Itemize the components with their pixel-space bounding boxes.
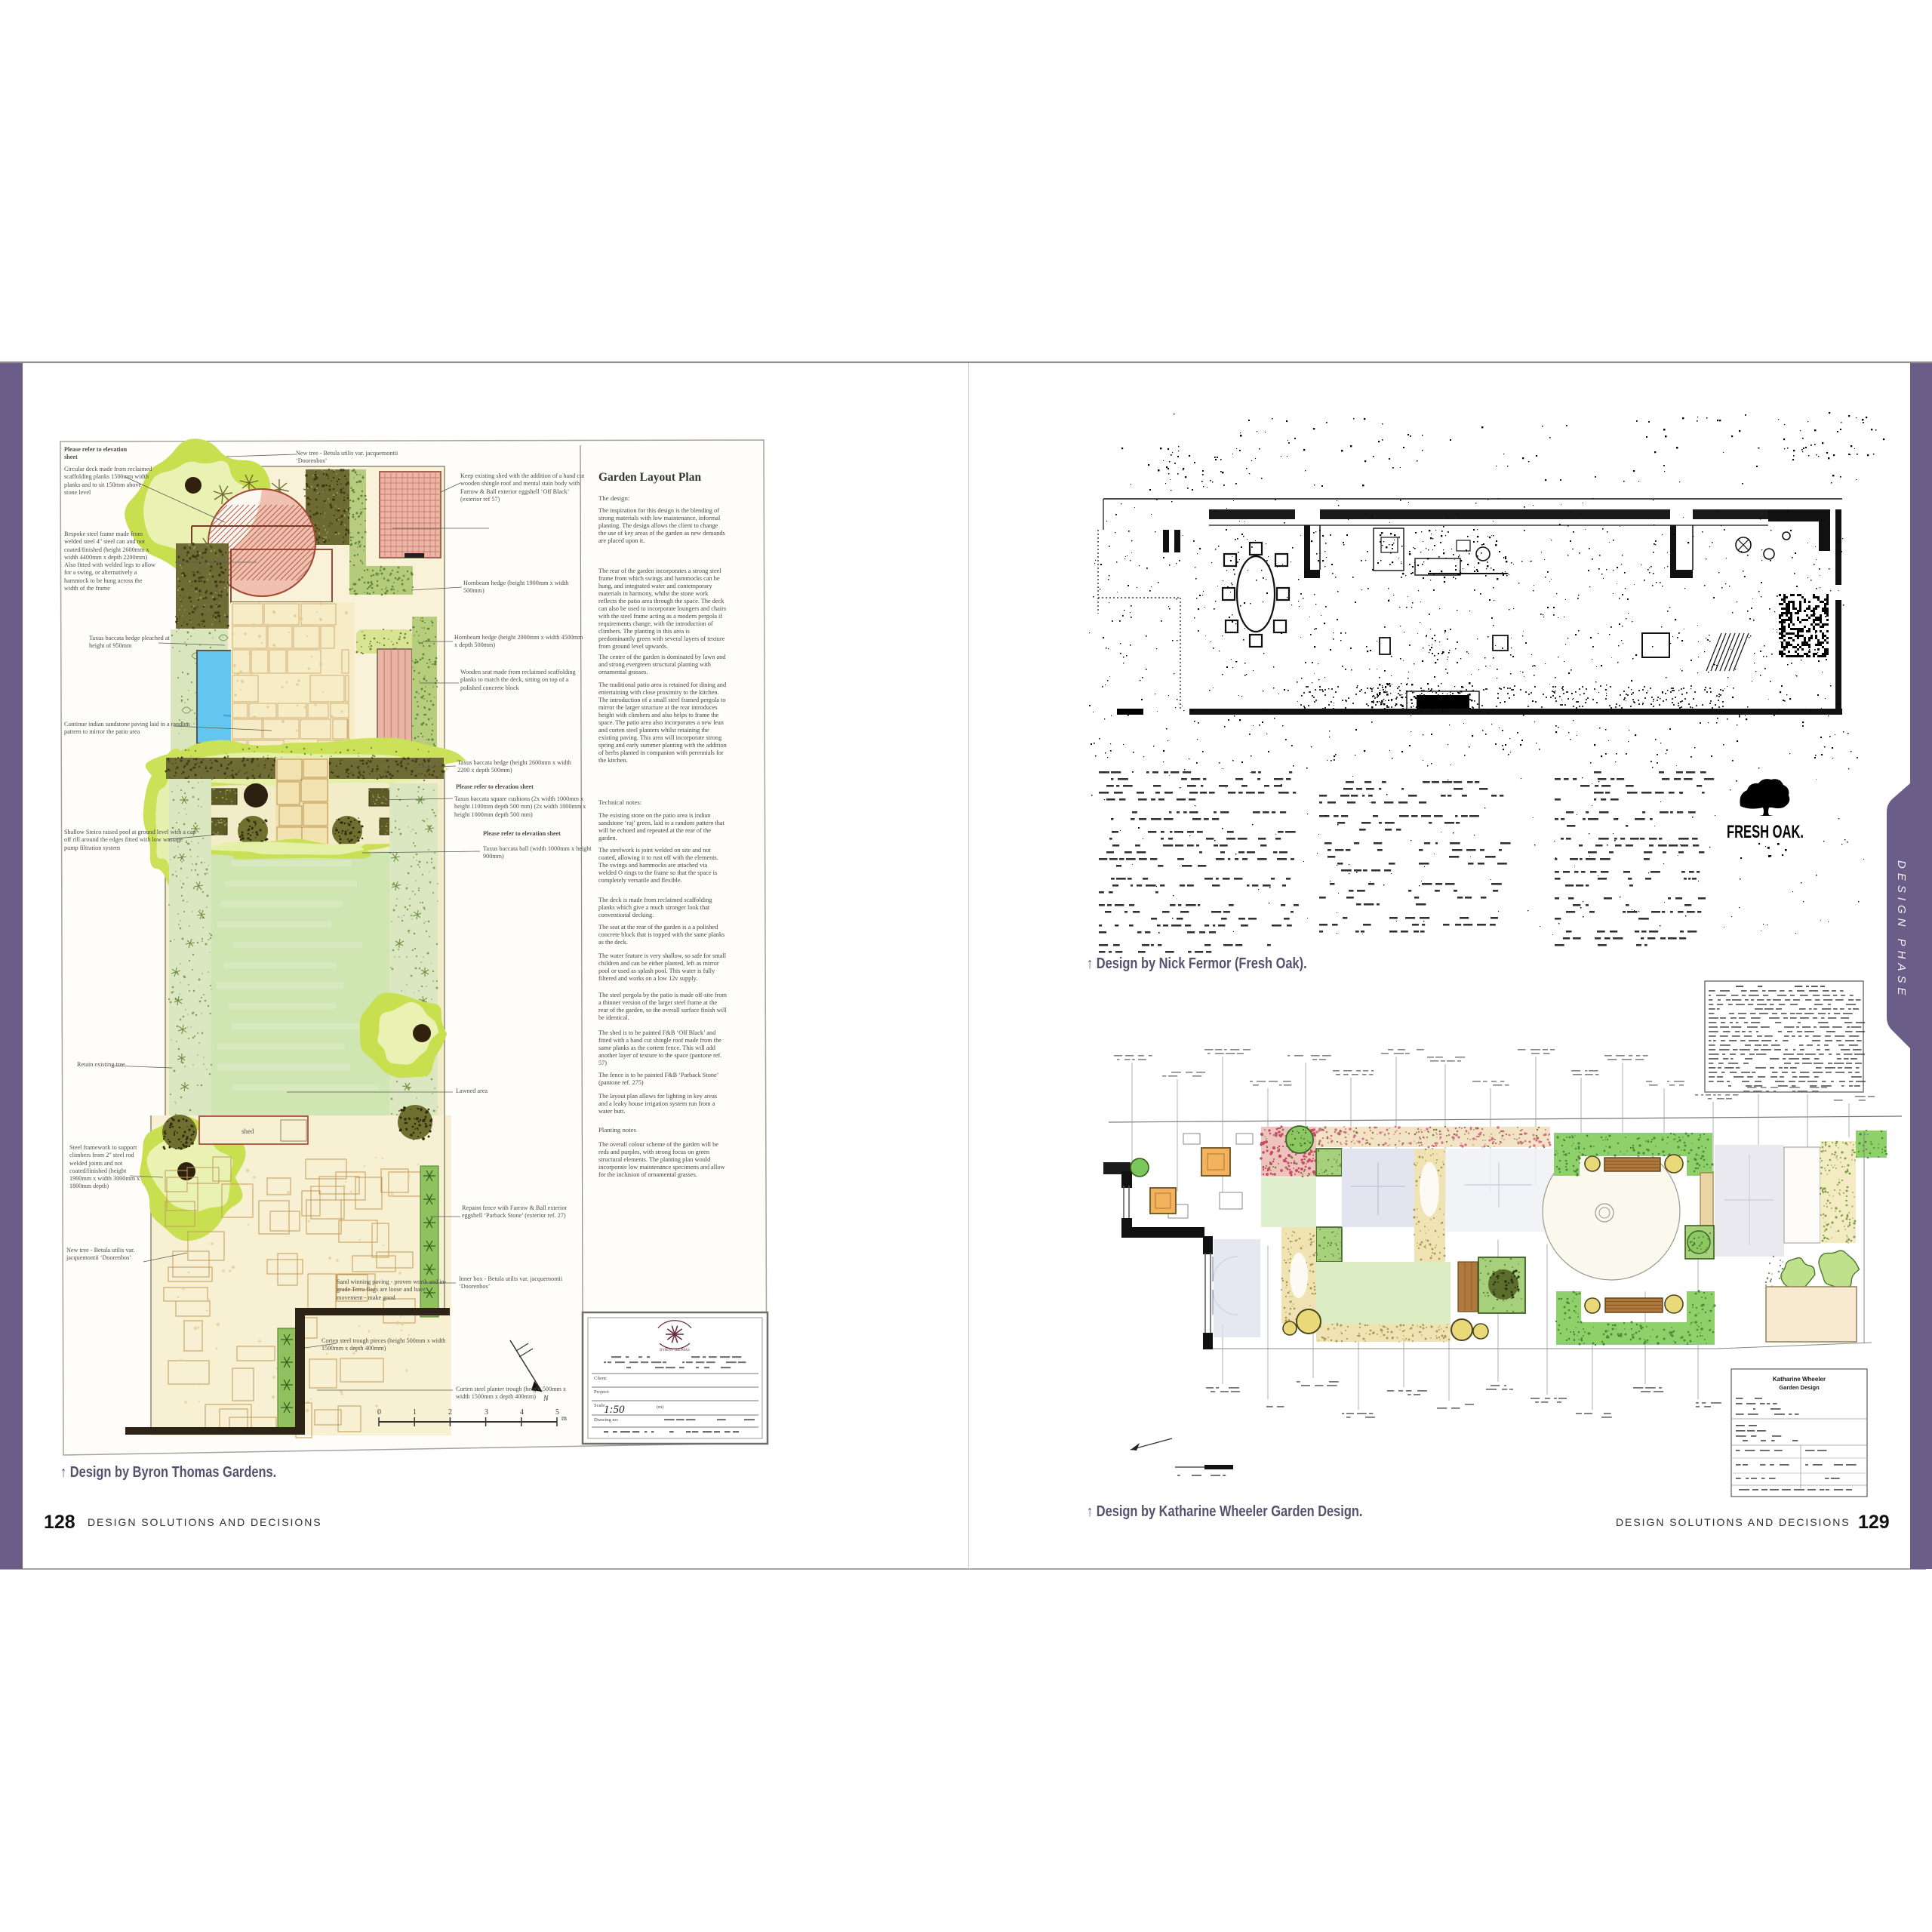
svg-text:FRESH OAK.: FRESH OAK. [1727, 822, 1804, 842]
svg-text:m: m [561, 1414, 567, 1422]
svg-text:1:50: 1:50 [604, 1404, 625, 1416]
svg-text:3: 3 [485, 1408, 488, 1417]
svg-text:BYRON THOMAS: BYRON THOMAS [660, 1349, 690, 1352]
svg-text:0: 0 [377, 1408, 381, 1417]
svg-text:Drawing no:: Drawing no: [594, 1417, 619, 1423]
svg-text:2: 2 [448, 1408, 452, 1417]
svg-text:Client:: Client: [594, 1376, 608, 1381]
svg-text:1: 1 [413, 1408, 417, 1417]
svg-text:shed: shed [241, 1128, 254, 1135]
svg-text:5: 5 [555, 1408, 559, 1417]
svg-text:Project:: Project: [594, 1389, 609, 1395]
svg-text:4: 4 [520, 1408, 524, 1417]
svg-text:(m): (m) [657, 1404, 663, 1410]
